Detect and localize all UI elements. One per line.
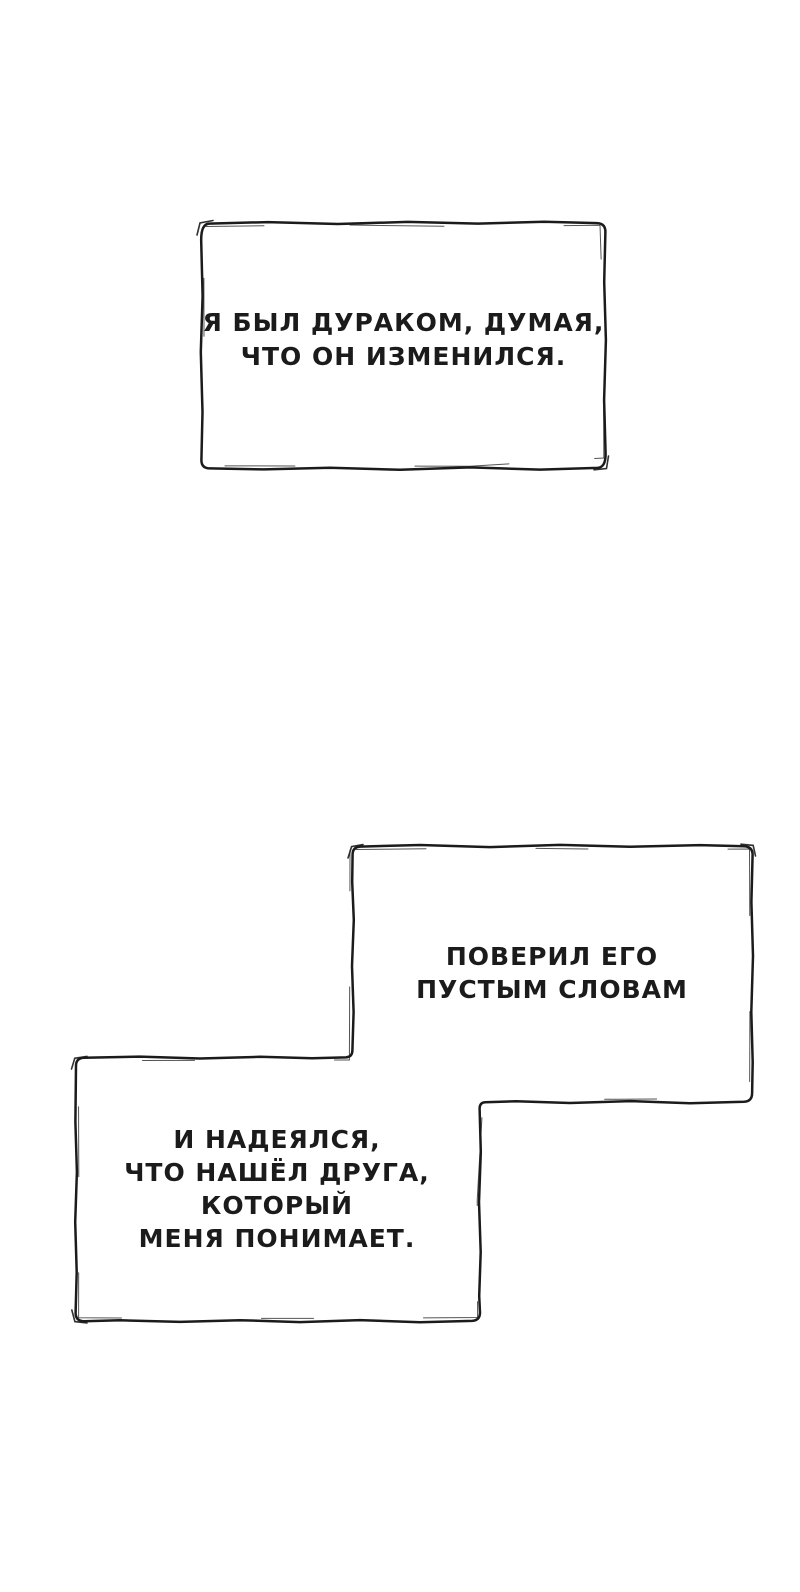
caption-line: ПОВЕРИЛ ЕГО <box>352 940 752 973</box>
caption-line: Я БЫЛ ДУРАКОМ, ДУМАЯ, <box>201 306 606 340</box>
caption-line: ЧТО ОН ИЗМЕНИЛСЯ. <box>201 340 606 374</box>
panel-borders <box>0 0 800 1592</box>
caption-box-middle: ПОВЕРИЛ ЕГО ПУСТЫМ СЛОВАМ <box>352 940 752 1006</box>
caption-line: ПУСТЫМ СЛОВАМ <box>352 973 752 1006</box>
manga-page: Я БЫЛ ДУРАКОМ, ДУМАЯ, ЧТО ОН ИЗМЕНИЛСЯ. … <box>0 0 800 1592</box>
caption-line: КОТОРЫЙ <box>75 1189 479 1222</box>
caption-line: ЧТО НАШЁЛ ДРУГА, <box>75 1156 479 1189</box>
caption-box-bottom: И НАДЕЯЛСЯ, ЧТО НАШЁЛ ДРУГА, КОТОРЫЙ МЕН… <box>75 1123 479 1255</box>
caption-box-top: Я БЫЛ ДУРАКОМ, ДУМАЯ, ЧТО ОН ИЗМЕНИЛСЯ. <box>201 306 606 374</box>
caption-line: МЕНЯ ПОНИМАЕТ. <box>75 1222 479 1255</box>
caption-line: И НАДЕЯЛСЯ, <box>75 1123 479 1156</box>
